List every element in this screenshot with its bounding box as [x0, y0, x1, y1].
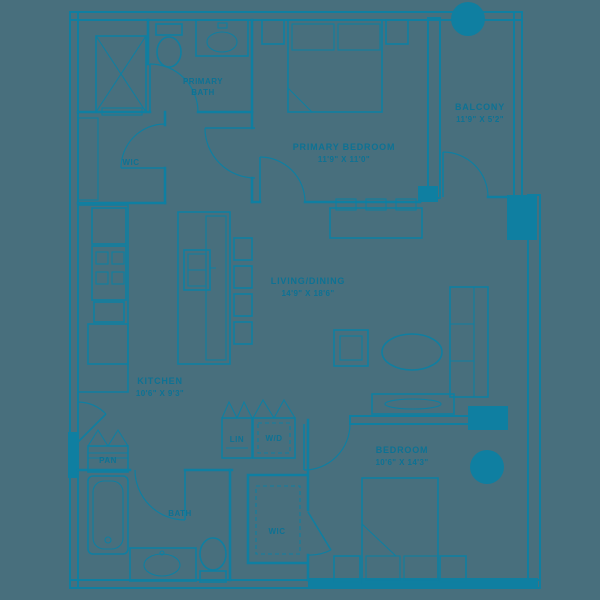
column-top — [451, 2, 485, 36]
bedroom-label: BEDROOM — [376, 445, 429, 455]
bath-label: BATH — [168, 509, 192, 518]
kitchen-dims: 10'6" X 9'3" — [136, 389, 184, 398]
wic-lower-label: WIC — [268, 527, 285, 536]
laundry-label: W/D — [265, 434, 282, 443]
primary-bath-label-line1: PRIMARY — [183, 77, 223, 86]
column-bedroom — [470, 450, 504, 484]
floor-plan-svg: PRIMARY BATH WIC PRIMARY BEDROOM 11'9" X… — [0, 0, 600, 600]
wall-block-left — [68, 432, 78, 478]
balcony-dims: 11'9" X 5'2" — [456, 115, 504, 124]
pantry-label: PAN — [99, 456, 117, 465]
wall-pier-bedroom — [468, 406, 508, 430]
wall-pier-right — [507, 195, 537, 240]
wall-pier-balcony — [418, 186, 438, 202]
living-dining-label: LIVING/DINING — [271, 276, 345, 286]
primary-bedroom-dims: 11'9" X 11'0" — [318, 155, 370, 164]
linen-label: LIN — [230, 435, 244, 444]
wic-upper-label: WIC — [122, 158, 139, 167]
bedroom-dims: 10'6" X 14'3" — [375, 458, 428, 467]
primary-bedroom-label: PRIMARY BEDROOM — [293, 142, 396, 152]
floor-plan: PRIMARY BATH WIC PRIMARY BEDROOM 11'9" X… — [0, 0, 600, 600]
kitchen-label: KITCHEN — [137, 376, 183, 386]
background — [0, 0, 600, 600]
primary-bath-label-line2: BATH — [191, 88, 215, 97]
living-dining-dims: 14'9" X 18'6" — [281, 289, 334, 298]
balcony-label: BALCONY — [455, 102, 505, 112]
